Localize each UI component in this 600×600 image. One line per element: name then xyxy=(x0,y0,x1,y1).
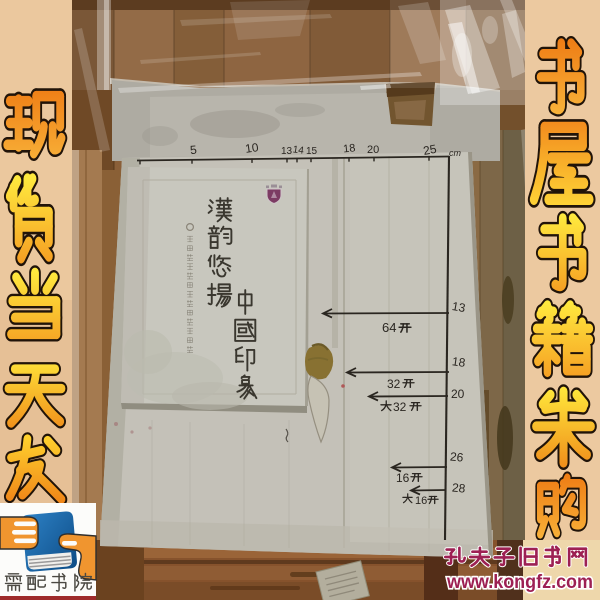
svg-text:10: 10 xyxy=(244,140,259,156)
svg-text:32: 32 xyxy=(387,377,401,391)
svg-text:26: 26 xyxy=(449,449,464,464)
svg-text:cm: cm xyxy=(449,148,462,158)
svg-text:20: 20 xyxy=(451,387,465,401)
svg-text:16: 16 xyxy=(396,471,410,485)
svg-text:13: 13 xyxy=(281,146,293,157)
svg-text:64: 64 xyxy=(382,320,396,335)
svg-text:16: 16 xyxy=(415,495,427,507)
svg-text:14: 14 xyxy=(292,144,305,157)
svg-text:25: 25 xyxy=(422,142,438,158)
svg-text:32: 32 xyxy=(393,400,407,414)
svg-text:13: 13 xyxy=(451,299,467,315)
svg-text:28: 28 xyxy=(451,480,466,495)
svg-text:www.kongfz.com: www.kongfz.com xyxy=(446,572,593,593)
svg-text:18: 18 xyxy=(451,354,466,370)
svg-text:20: 20 xyxy=(367,144,379,156)
svg-text:18: 18 xyxy=(343,142,356,155)
svg-text:15: 15 xyxy=(306,146,318,157)
